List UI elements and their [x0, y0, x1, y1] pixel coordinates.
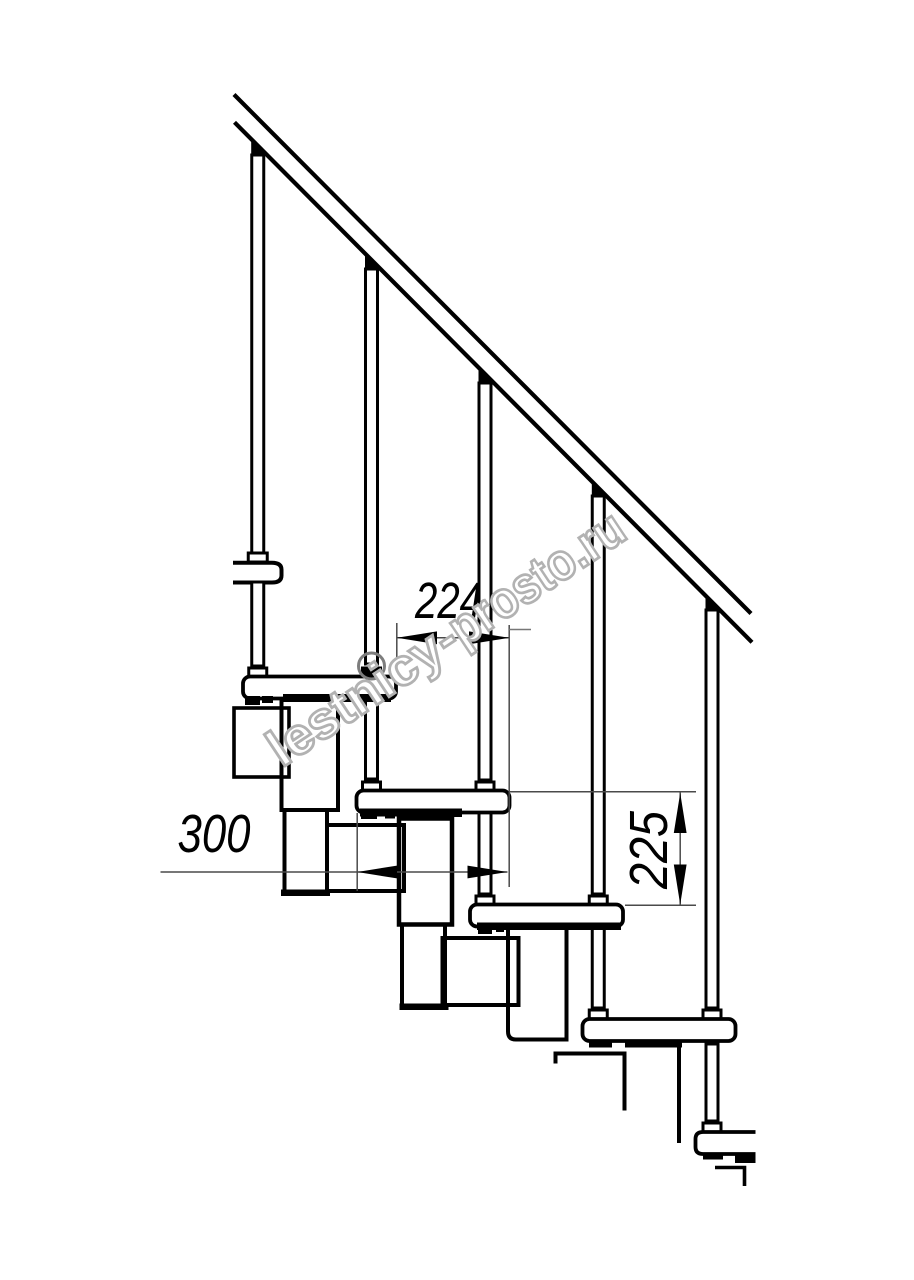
svg-text:225: 225: [619, 810, 679, 890]
svg-text:300: 300: [178, 804, 251, 864]
